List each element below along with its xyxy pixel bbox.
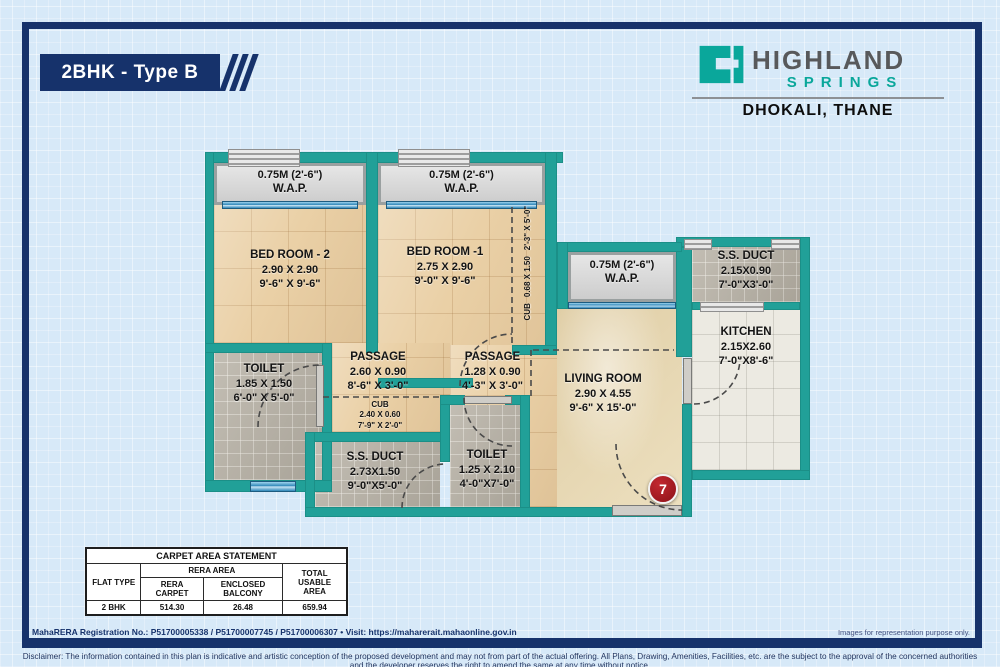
unit-number-badge: 7 [648,474,678,504]
disclaimer: Disclaimer: The information contained in… [20,652,980,667]
wap3-label: 0.75M (2'-6") W.A.P. [568,258,676,287]
toilet1-label: TOILET 1.85 X 1.50 6'-0" X 5'-0" [214,362,314,406]
living-room-label: LIVING ROOM 2.90 X 4.55 9'-6" X 15'-0" [528,372,678,416]
wap1-label: 0.75M (2'-6") W.A.P. [214,168,366,197]
cell-rera-carpet: 514.30 [141,601,203,616]
col-rera-carpet: RERA CARPET [141,578,203,601]
cell-total: 659.94 [283,601,347,616]
cell-enclosed-balcony: 26.48 [203,601,283,616]
cub1-label: CUB 0.68 X 1.50 2'-3" X 5'-0" [523,193,533,333]
bedroom1-label: BED ROOM -1 2.75 X 2.90 9'-0" X 9'-6" [375,245,515,289]
col-total-usable: TOTAL USABLE AREA [283,564,347,601]
images-note: Images for representation purpose only. [838,628,970,637]
bedroom2-label: BED ROOM - 2 2.90 X 2.90 9'-6" X 9'-6" [214,248,366,292]
table-row: 2 BHK 514.30 26.48 659.94 [86,601,347,616]
rera-registration: MahaRERA Registration No.: P51700005338 … [32,627,517,637]
passage1-label: PASSAGE 2.60 X 0.90 8'-6" X 3'-0" [318,350,438,394]
col-flat-type: FLAT TYPE [86,564,141,601]
wap2-label: 0.75M (2'-6") W.A.P. [378,168,545,197]
col-enclosed-balcony: ENCLOSED BALCONY [203,578,283,601]
cub2-label: CUB 2.40 X 0.60 7'-9" X 2'-0" [330,400,430,431]
table-title: CARPET AREA STATEMENT [86,548,347,564]
toilet2-label: TOILET 1.25 X 2.10 4'-0"X7'-0" [443,448,531,492]
carpet-area-table: CARPET AREA STATEMENT FLAT TYPE RERA ARE… [85,547,348,616]
kitchen-label: KITCHEN 2.15X2.60 7'-0"X8'-6" [692,325,800,369]
cell-flat-type: 2 BHK [86,601,141,616]
ssduct2-label: S.S. DUCT 2.73X1.50 9'-0"X5'-0" [315,450,435,494]
passage2-label: PASSAGE 1.28 X 0.90 4'-3" X 3'-0" [445,350,540,394]
col-rera-area: RERA AREA [141,564,283,578]
ssduct1-label: S.S. DUCT 2.15X0.90 7'-0"X3'-0" [692,249,800,293]
floor-plan-page: 2BHK - Type B HIGHLAND SPRINGS DHOKALI, … [0,0,1000,667]
